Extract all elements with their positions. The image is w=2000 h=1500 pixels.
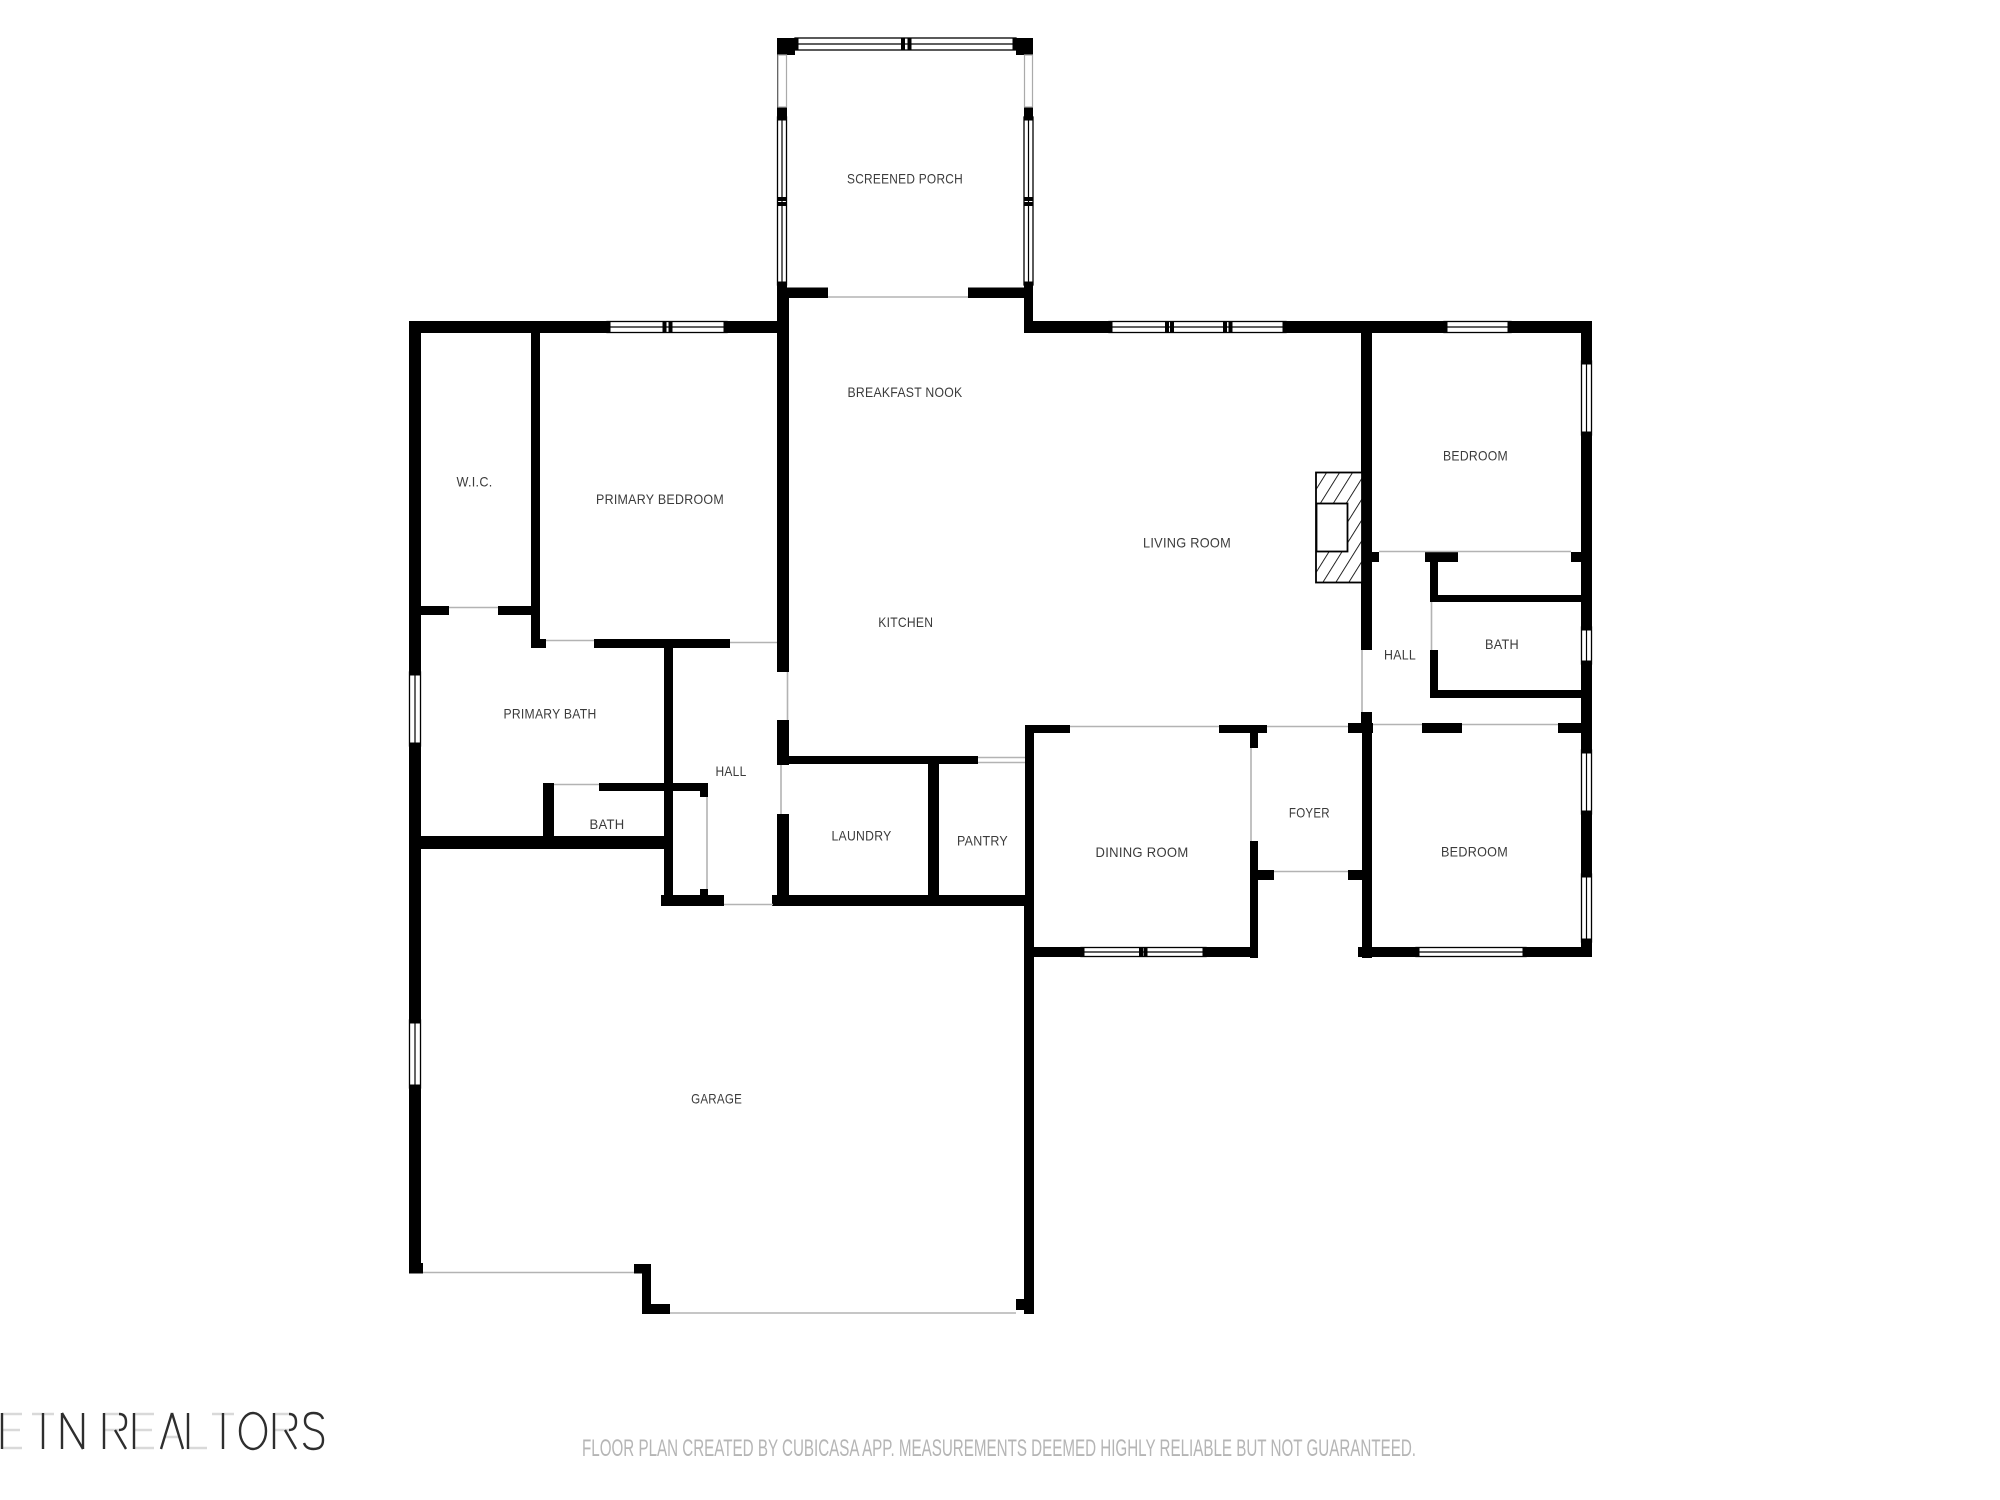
svg-text:BEDROOM: BEDROOM — [1441, 844, 1508, 860]
svg-text:SCREENED PORCH: SCREENED PORCH — [847, 171, 963, 187]
svg-text:FLOOR PLAN CREATED BY CUBICASA: FLOOR PLAN CREATED BY CUBICASA APP. MEAS… — [582, 1435, 1416, 1462]
svg-text:BATH: BATH — [1485, 636, 1519, 652]
svg-text:PRIMARY BATH: PRIMARY BATH — [504, 706, 597, 722]
svg-text:PANTRY: PANTRY — [957, 833, 1008, 849]
svg-text:DINING ROOM: DINING ROOM — [1096, 844, 1189, 860]
svg-text:W.I.C.: W.I.C. — [457, 474, 493, 490]
svg-text:LAUNDRY: LAUNDRY — [832, 828, 892, 844]
svg-text:GARAGE: GARAGE — [691, 1091, 742, 1107]
svg-text:HALL: HALL — [1384, 647, 1416, 663]
svg-text:BREAKFAST NOOK: BREAKFAST NOOK — [848, 384, 963, 400]
svg-text:FOYER: FOYER — [1289, 805, 1330, 821]
svg-text:KITCHEN: KITCHEN — [878, 614, 933, 630]
svg-text:BEDROOM: BEDROOM — [1443, 448, 1508, 464]
svg-text:HALL: HALL — [716, 763, 747, 779]
svg-text:PRIMARY BEDROOM: PRIMARY BEDROOM — [596, 491, 724, 507]
svg-text:BATH: BATH — [590, 816, 625, 832]
svg-text:LIVING ROOM: LIVING ROOM — [1143, 535, 1231, 551]
